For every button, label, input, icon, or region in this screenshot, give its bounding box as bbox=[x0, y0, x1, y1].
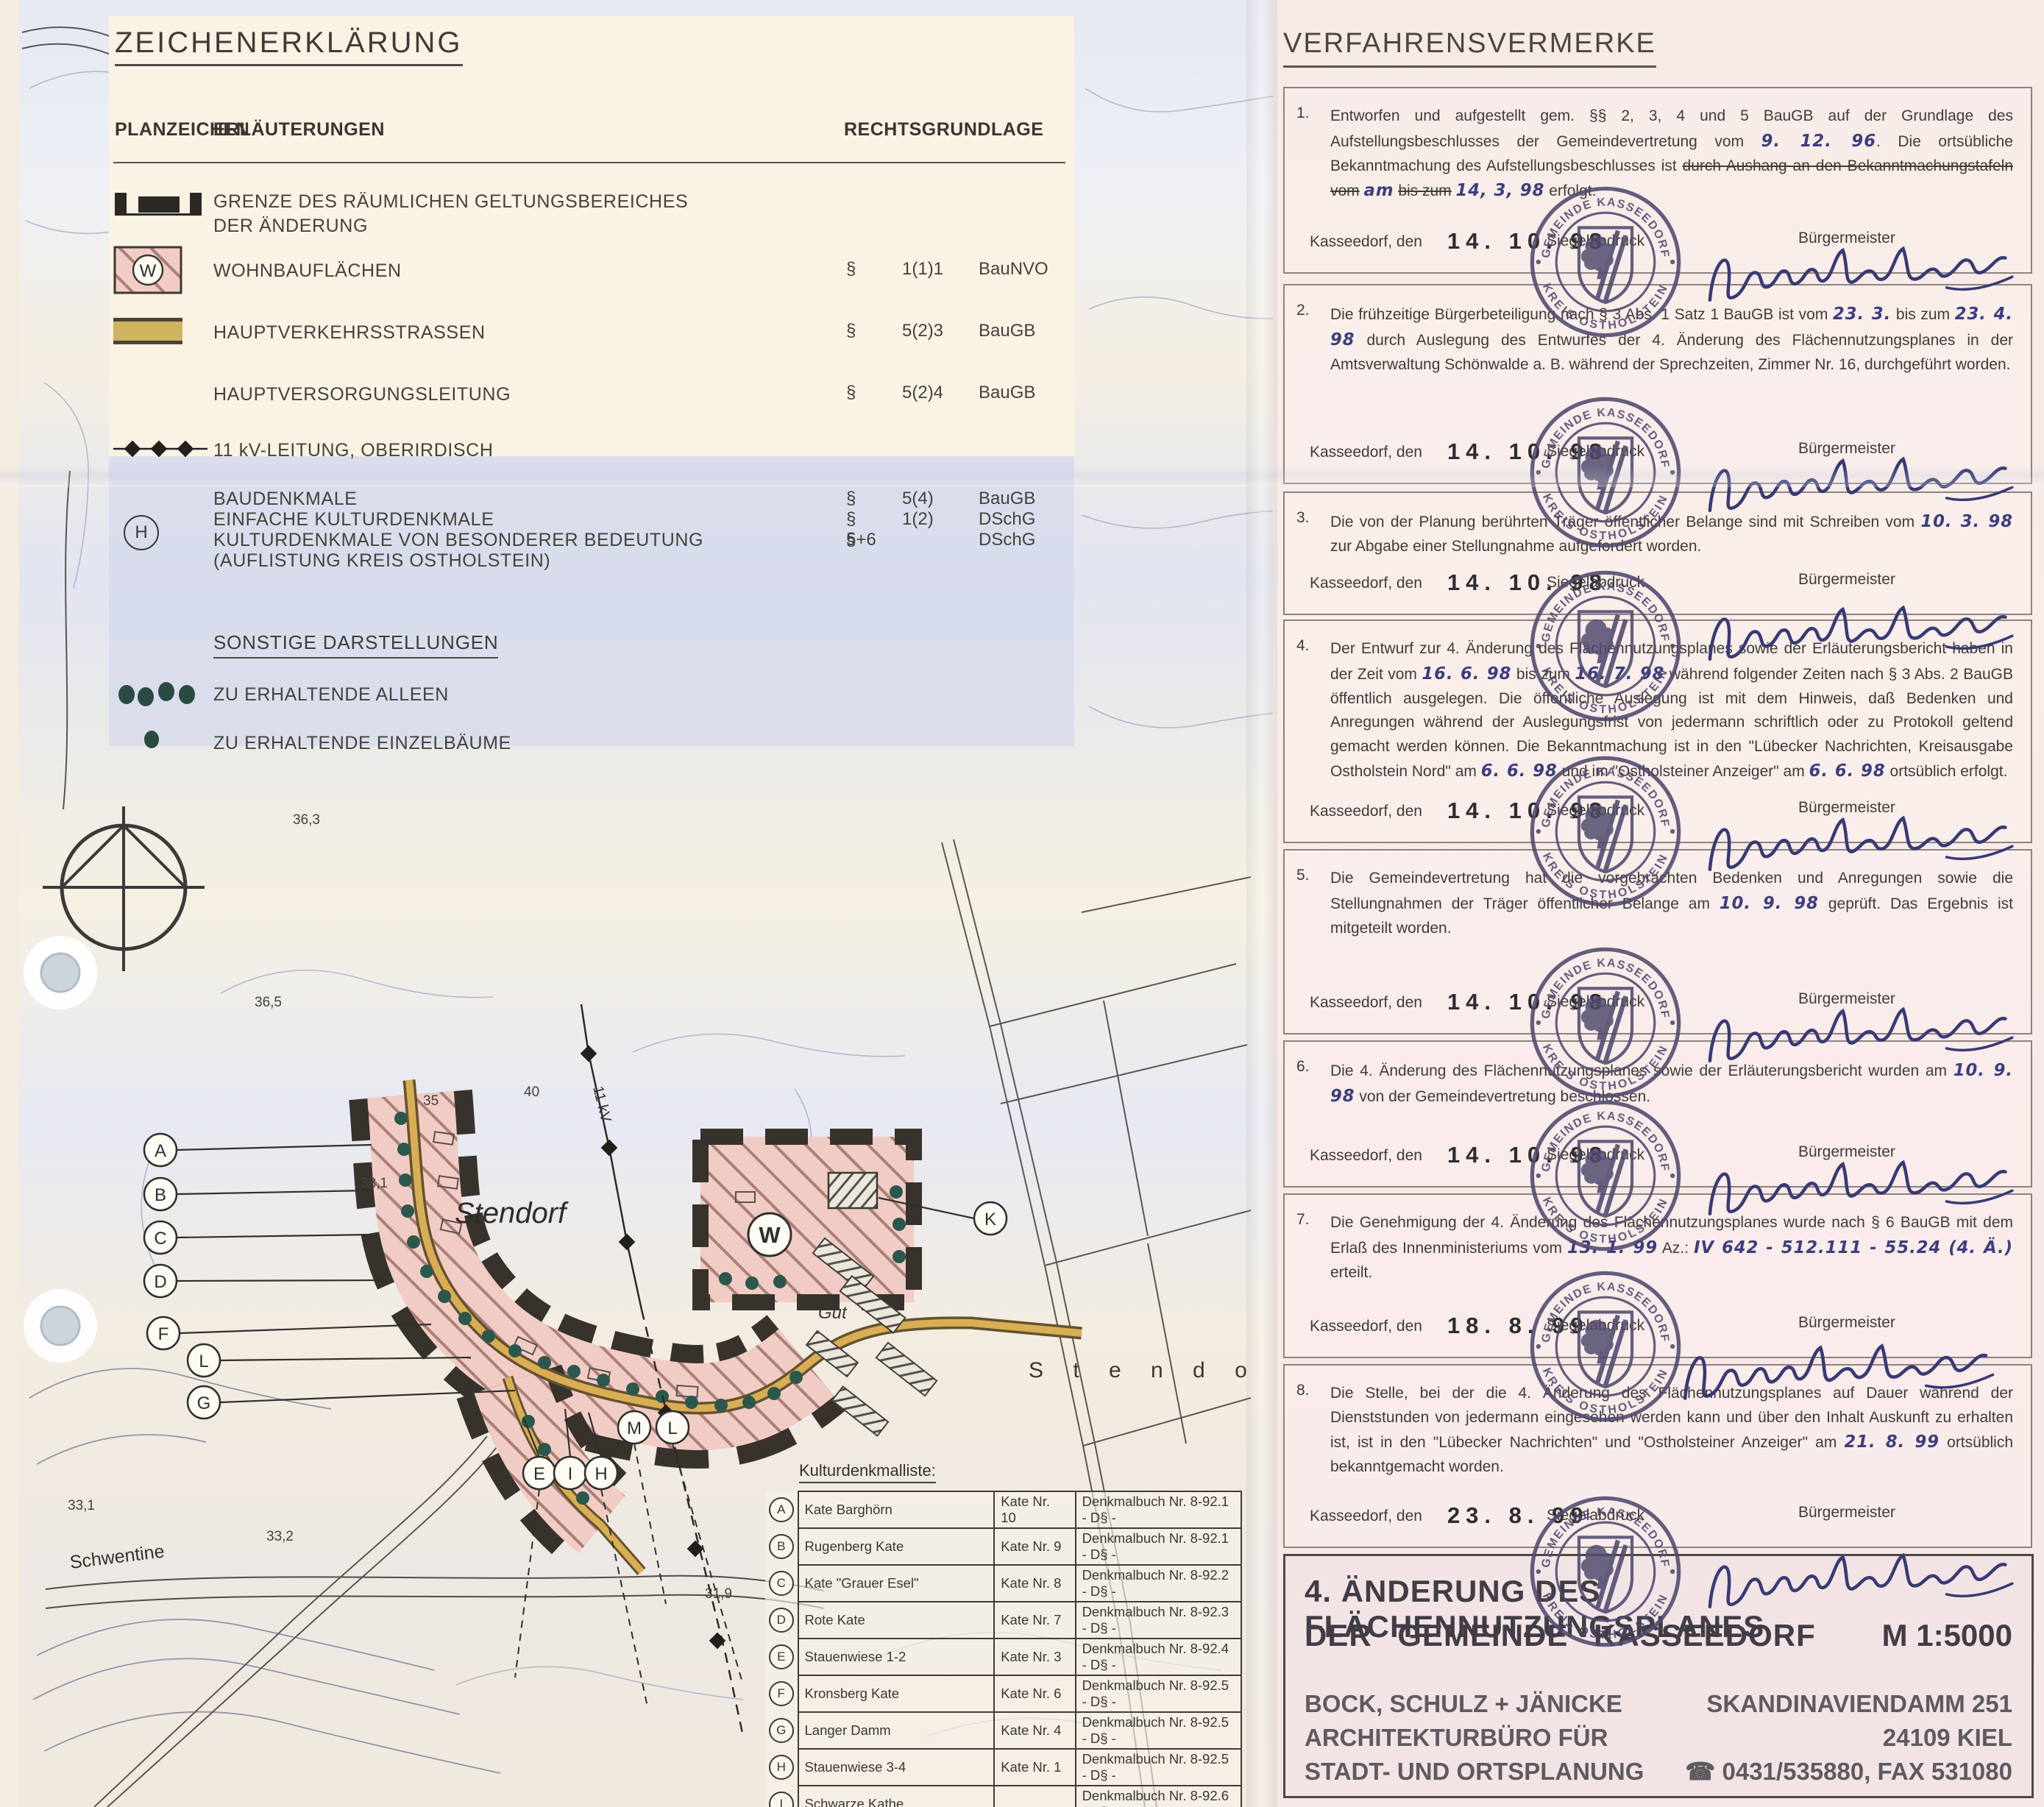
strasse-law: BauGB bbox=[979, 321, 1035, 341]
kulturdenkmalliste-title: Kulturdenkmalliste: bbox=[799, 1461, 936, 1483]
strasse-ref: 5(2)3 bbox=[902, 321, 943, 341]
marker-i: I bbox=[554, 1457, 586, 1489]
svg-text:K: K bbox=[984, 1210, 996, 1229]
marker-a: A bbox=[144, 1134, 177, 1166]
svg-text:B: B bbox=[155, 1185, 166, 1205]
svg-text:G: G bbox=[197, 1394, 211, 1413]
kv-label: 11 kV-LEITUNG, OBERIRDISCH bbox=[213, 439, 494, 463]
marker-b: B bbox=[144, 1178, 177, 1210]
table-row: DRote KateKate Nr. 7Denkmalbuch Nr. 8-92… bbox=[765, 1602, 1241, 1639]
col-rechtsgrundlage: RECHTSGRUNDLAGE bbox=[844, 119, 1043, 141]
stendorf-label: Stendorf bbox=[455, 1197, 569, 1229]
svg-text:33,2: 33,2 bbox=[266, 1529, 294, 1544]
svg-text:A: A bbox=[155, 1141, 166, 1161]
wohn-ref: 1(1)1 bbox=[902, 259, 943, 280]
svg-text:W: W bbox=[140, 261, 157, 281]
table-row: ISchwarze KatheDenkmalbuch Nr. 8-92.6 - … bbox=[765, 1786, 1241, 1807]
wohnbauflaeche-symbol-icon: W bbox=[113, 246, 182, 294]
marker-g: G bbox=[188, 1386, 220, 1419]
svg-text:33,1: 33,1 bbox=[68, 1498, 95, 1513]
vermerk-5: 5. Die Gemeindevertretung hat die vorgeb… bbox=[1283, 849, 2032, 1034]
svg-text:31,9: 31,9 bbox=[705, 1586, 732, 1602]
svg-text:D: D bbox=[154, 1272, 166, 1292]
vermerk-6-text: Die 4. Änderung des Flächennutzungsplane… bbox=[1330, 1058, 2013, 1110]
vermerk-8-text: Die Stelle, bei der die 4. Änderung des … bbox=[1330, 1382, 2013, 1480]
grenze-label: GRENZE DES RÄUMLICHEN GELTUNGSBEREICHESD… bbox=[213, 190, 688, 238]
marker-w: W bbox=[748, 1213, 791, 1256]
svg-text:W: W bbox=[759, 1222, 781, 1248]
svg-text:35: 35 bbox=[423, 1093, 439, 1109]
legend-title: ZEICHENERKLÄRUNG bbox=[115, 26, 463, 66]
vermerk-7-text: Die Genehmigung der 4. Änderung des Fläc… bbox=[1330, 1211, 2013, 1285]
leitung-ref: 5(2)4 bbox=[902, 383, 943, 403]
vermerk-4-footer: Kasseedorf, den14. 10. 98 Siegelabdruck … bbox=[1310, 798, 2016, 830]
denkmal-symbol-icon: H bbox=[124, 515, 159, 550]
svg-text:F: F bbox=[158, 1324, 169, 1344]
svg-text:E: E bbox=[533, 1464, 545, 1484]
vermerk-8-footer: Kasseedorf, den23. 8. 99 Siegelabdruck B… bbox=[1310, 1502, 2016, 1535]
svg-text:36,5: 36,5 bbox=[255, 995, 282, 1010]
grenze-symbol-icon bbox=[113, 191, 203, 218]
marker-e: E bbox=[523, 1457, 556, 1489]
vermerk-2: 2. Die frühzeitige Bürgerbeteiligung nac… bbox=[1283, 284, 2032, 484]
svg-text:H: H bbox=[595, 1464, 607, 1484]
marker-h: H bbox=[585, 1457, 617, 1489]
vermerk-5-footer: Kasseedorf, den14. 10. 98 Siegelabdruck … bbox=[1310, 989, 2016, 1021]
vermerk-3-footer: Kasseedorf, den14. 10. 98 Siegelabdruck … bbox=[1310, 569, 2016, 602]
stendorf-area-label: S t e n d o r f bbox=[1029, 1358, 1273, 1382]
leitung-label: HAUPTVERSORGUNGSLEITUNG bbox=[213, 383, 511, 407]
svg-text:40: 40 bbox=[524, 1084, 539, 1100]
sonstige-title: SONSTIGE DARSTELLUNGEN bbox=[213, 631, 498, 658]
col-erlaeuterungen: ERLÄUTERUNGEN bbox=[213, 119, 385, 141]
marker-d: D bbox=[144, 1265, 177, 1297]
table-row: CKate "Grauer Esel"Kate Nr. 8Denkmalbuch… bbox=[765, 1565, 1241, 1602]
strasse-symbol-icon bbox=[113, 316, 182, 346]
denkmal-labels: BAUDENKMALE EINFACHE KULTURDENKMALE KULT… bbox=[213, 489, 703, 571]
table-row: BRugenberg KateKate Nr. 9Denkmalbuch Nr.… bbox=[765, 1528, 1241, 1565]
vermerk-7: 7. Die Genehmigung der 4. Änderung des F… bbox=[1283, 1193, 2032, 1358]
marker-k: K bbox=[974, 1202, 1007, 1235]
table-row: HStauenwiese 3-4Kate Nr. 1Denkmalbuch Nr… bbox=[765, 1749, 1241, 1786]
svg-text:I: I bbox=[568, 1464, 573, 1484]
verfahrensvermerke-title: VERFAHRENSVERMERKE bbox=[1283, 28, 1656, 68]
architect-address: SKANDINAVIENDAMM 251 24109 KIEL ☎ 0431/5… bbox=[1685, 1687, 2012, 1789]
alleen-label: ZU ERHALTENDE ALLEEN bbox=[213, 683, 449, 707]
svg-text:C: C bbox=[154, 1229, 166, 1249]
wohnbauflaeche-block bbox=[700, 1137, 914, 1302]
vermerk-4: 4. Der Entwurf zur 4. Änderung des Fläch… bbox=[1283, 620, 2032, 843]
strasse-label: HAUPTVERKEHRSSTRASSEN bbox=[213, 321, 486, 345]
leitung-law: BauGB bbox=[979, 383, 1035, 403]
vermerk-1-footer: Kasseedorf, den14. 10. 98 Siegelabdruck … bbox=[1310, 228, 2016, 260]
wohnbauflaeche-label: WOHNBAUFLÄCHEN bbox=[213, 259, 402, 283]
kulturdenkmal-table: Kulturdenkmalliste: AKate BarghörnKate N… bbox=[765, 1461, 1242, 1807]
plan-scale: M 1:5000 bbox=[1882, 1618, 2012, 1653]
marker-m: M bbox=[618, 1411, 650, 1444]
einzelbaeume-label: ZU ERHALTENDE EINZELBÄUME bbox=[213, 731, 511, 756]
vermerk-2-footer: Kasseedorf, den14. 10. 98 Siegelabdruck … bbox=[1310, 439, 2016, 471]
plan-sheet: GEMEINDE KASSEEDORF KREIS OSTHOLSTEIN bbox=[0, 0, 2044, 1807]
vermerk-4-text: Der Entwurf zur 4. Änderung des Flächenn… bbox=[1330, 637, 2013, 785]
vermerk-8: 8. Die Stelle, bei der die 4. Änderung d… bbox=[1283, 1364, 2032, 1548]
plan-title-line2: DER GEMEINDE KASSEEDORF bbox=[1305, 1618, 1816, 1653]
vermerk-6: 6. Die 4. Änderung des Flächennutzungspl… bbox=[1283, 1040, 2032, 1187]
legend-divider bbox=[113, 162, 1065, 163]
table-row: GLanger DammKate Nr. 4Denkmalbuch Nr. 8-… bbox=[765, 1712, 1241, 1749]
vermerk-2-text: Die frühzeitige Bürgerbeteiligung nach §… bbox=[1330, 302, 2013, 377]
vermerk-7-footer: Kasseedorf, den18. 8. 99 Siegelabdruck B… bbox=[1310, 1313, 2016, 1345]
vermerk-3: 3. Die von der Planung berührten Träger … bbox=[1283, 491, 2032, 615]
table-row: EStauenwiese 1-2Kate Nr. 3Denkmalbuch Nr… bbox=[765, 1639, 1241, 1675]
verfahrensvermerke-panel: VERFAHRENSVERMERKE 1. Entworfen und aufg… bbox=[1273, 0, 2044, 1807]
gut-label: Gut bbox=[818, 1303, 848, 1323]
architect-firm: BOCK, SCHULZ + JÄNICKE ARCHITEKTURBÜRO F… bbox=[1305, 1687, 1644, 1789]
table-row: FKronsberg KateKate Nr. 6Denkmalbuch Nr.… bbox=[765, 1675, 1241, 1712]
vermerk-3-text: Die von der Planung berührten Träger öff… bbox=[1330, 509, 2013, 559]
einzelbaum-symbol-icon bbox=[138, 727, 168, 752]
vermerk-1-text: Entworfen und aufgestellt gem. §§ 2, 3, … bbox=[1330, 104, 2013, 204]
vermerk-5-text: Die Gemeindevertretung hat die vorgebrac… bbox=[1330, 867, 2013, 940]
legend-panel: ZEICHENERKLÄRUNG PLANZEICHEN ERLÄUTERUNG… bbox=[109, 16, 1074, 746]
vermerk-1: 1. Entworfen und aufgestellt gem. §§ 2, … bbox=[1283, 87, 2032, 274]
svg-text:L: L bbox=[667, 1419, 677, 1438]
kulturdenkmal-building bbox=[828, 1173, 877, 1208]
marker-l2: L bbox=[656, 1411, 689, 1444]
svg-text:M: M bbox=[627, 1419, 642, 1438]
svg-text:38,1: 38,1 bbox=[361, 1176, 388, 1191]
marker-l1: L bbox=[188, 1344, 220, 1377]
wohn-law: BauNVO bbox=[979, 259, 1048, 280]
kv-symbol-icon bbox=[113, 437, 207, 461]
vermerk-6-footer: Kasseedorf, den14. 10. 98 Siegelabdruck … bbox=[1310, 1142, 2016, 1174]
table-row: AKate BarghörnKate Nr. 10Denkmalbuch Nr.… bbox=[765, 1491, 1241, 1528]
title-block: 4. ÄNDERUNG DES FLÄCHENNUTZUNGSPLANES DE… bbox=[1283, 1554, 2034, 1798]
alleen-symbol-icon bbox=[113, 677, 209, 706]
marker-f: F bbox=[147, 1317, 180, 1349]
marker-c: C bbox=[144, 1221, 177, 1254]
svg-text:36,3: 36,3 bbox=[293, 812, 320, 828]
svg-text:L: L bbox=[199, 1352, 208, 1371]
